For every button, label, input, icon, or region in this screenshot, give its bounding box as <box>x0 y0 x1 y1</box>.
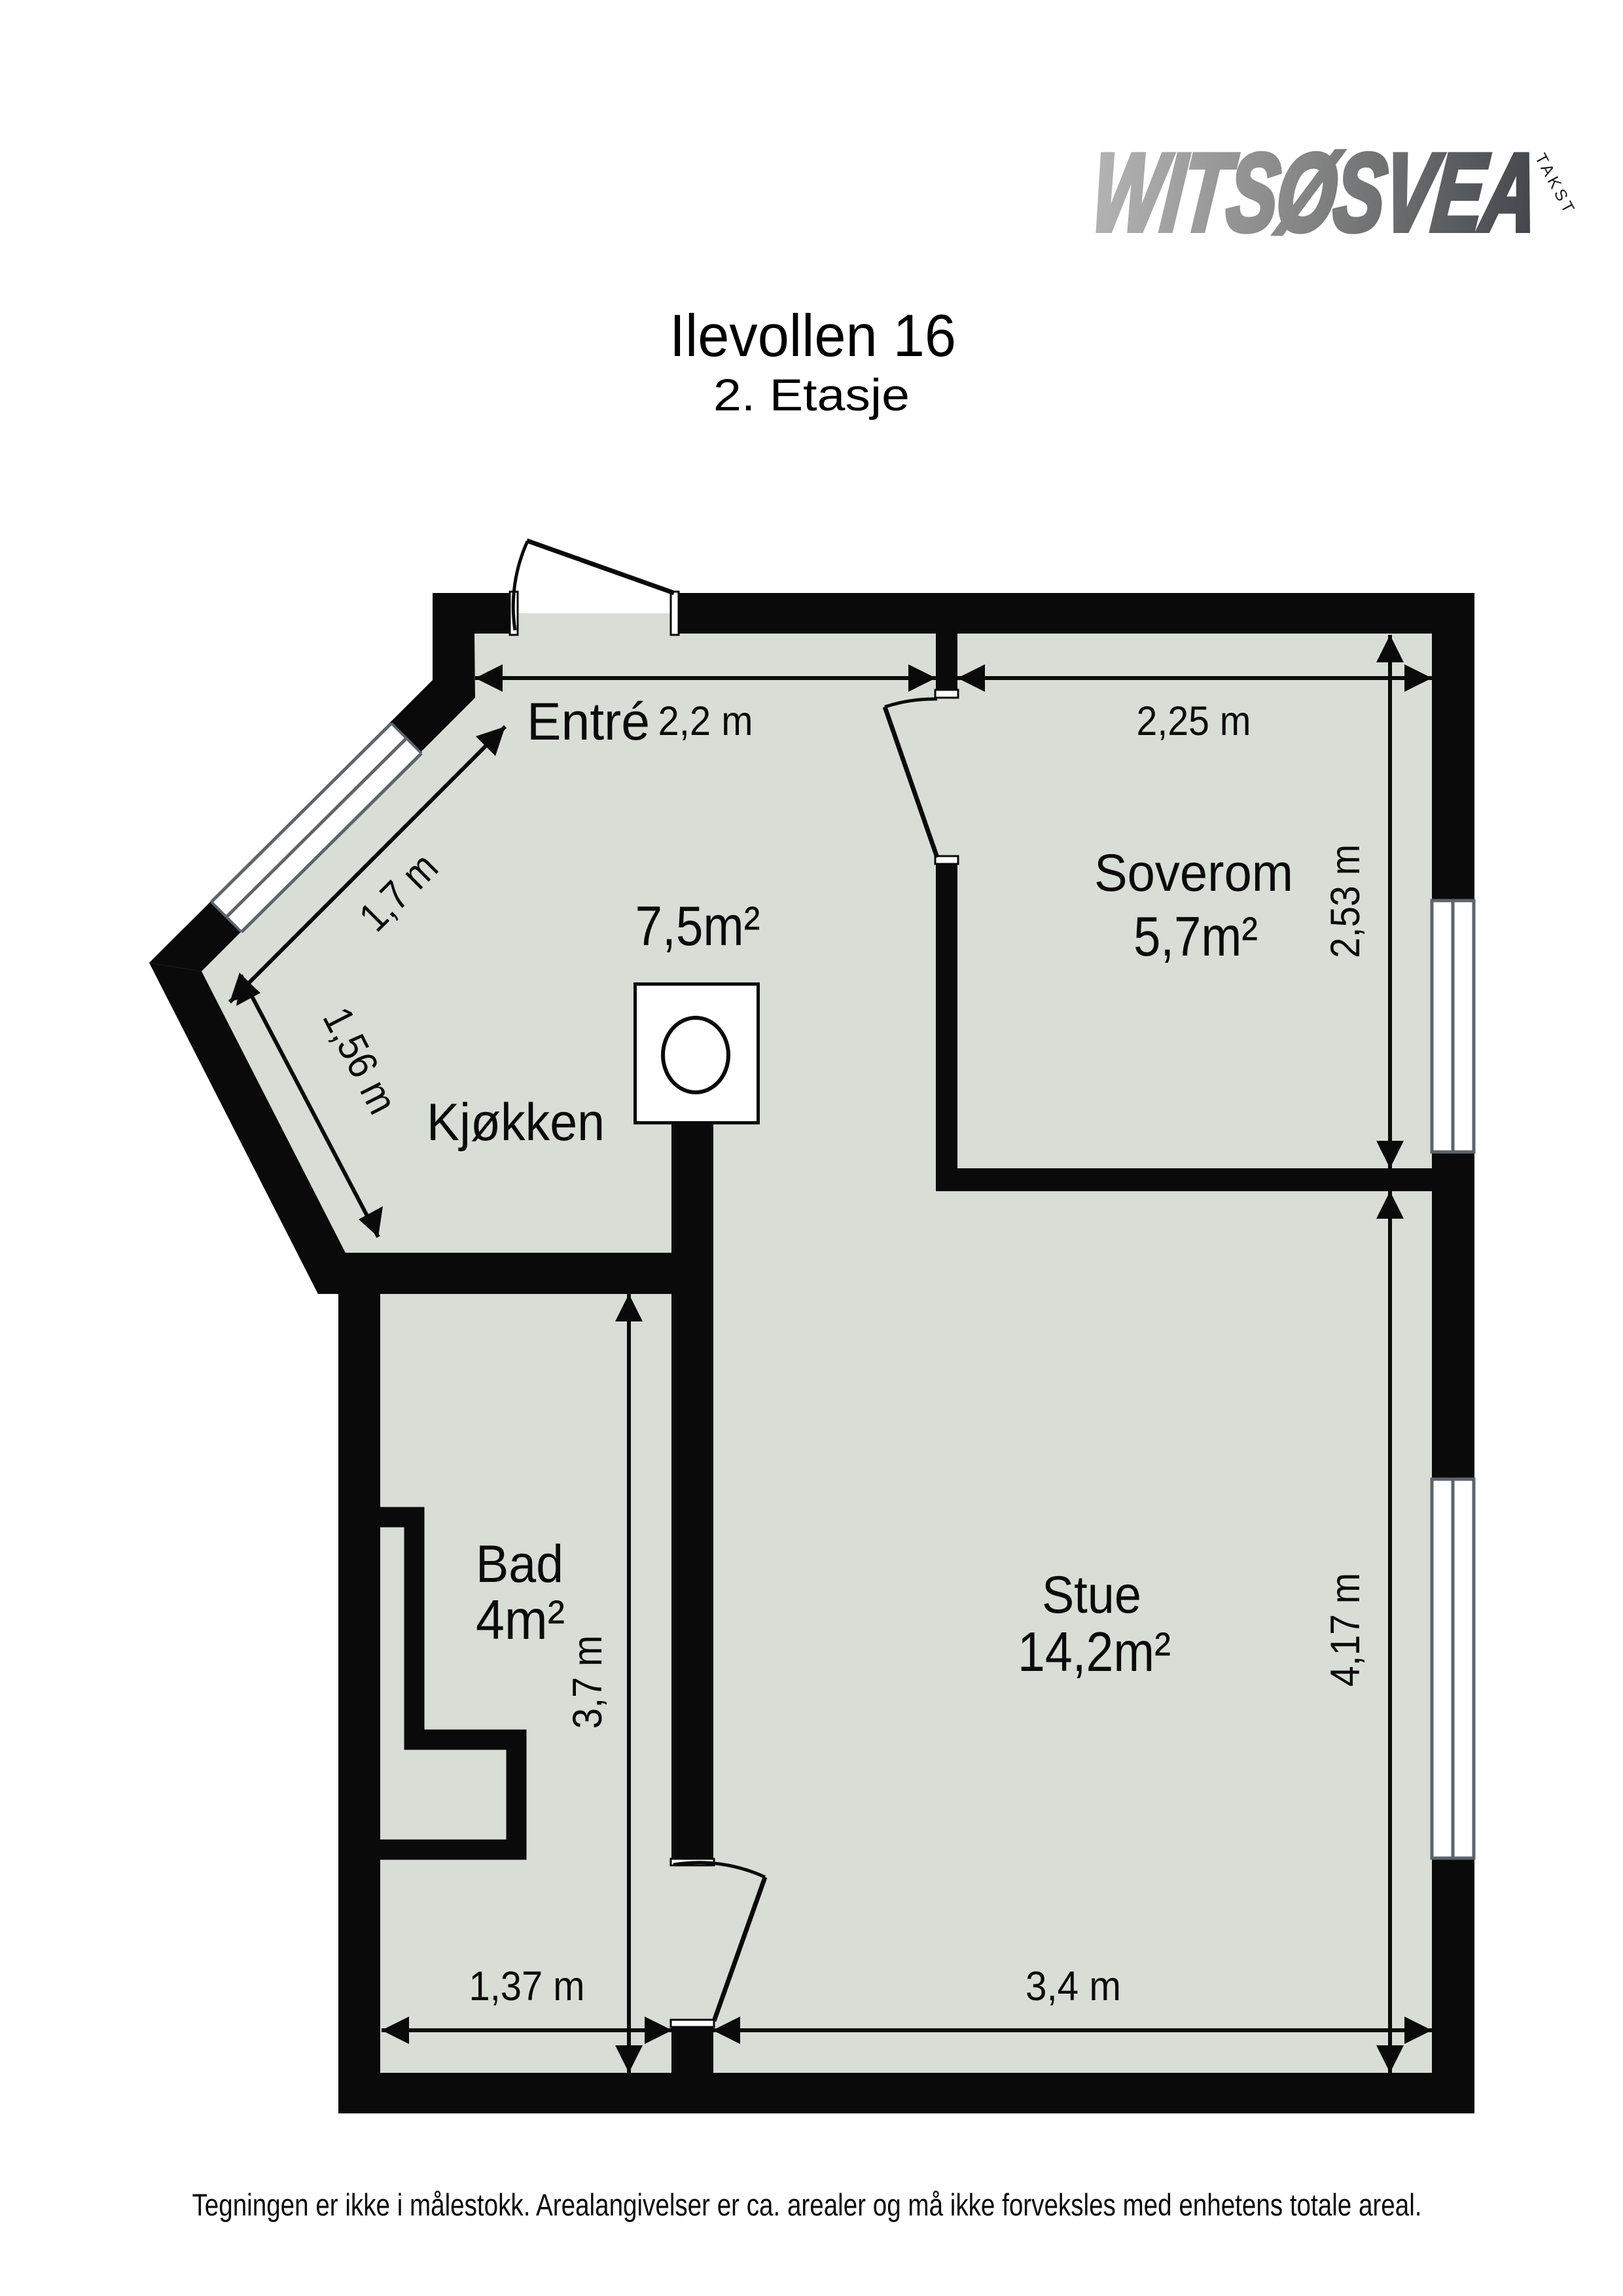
svg-text:14,2m²: 14,2m² <box>1018 1621 1171 1683</box>
svg-text:4,17 m: 4,17 m <box>1323 1573 1368 1687</box>
svg-text:Entré: Entré <box>527 692 650 751</box>
svg-text:Stue: Stue <box>1042 1566 1141 1624</box>
svg-text:5,7m²: 5,7m² <box>1133 906 1258 968</box>
svg-text:Soverom: Soverom <box>1094 844 1293 903</box>
svg-text:2. Etasje: 2. Etasje <box>713 370 910 420</box>
svg-text:1,37 m: 1,37 m <box>469 1964 585 2009</box>
svg-text:2,53 m: 2,53 m <box>1323 844 1368 958</box>
svg-text:3,7 m: 3,7 m <box>565 1636 611 1729</box>
svg-text:2,2 m: 2,2 m <box>658 698 753 744</box>
svg-text:4m²: 4m² <box>476 1589 565 1651</box>
svg-text:WITSØSVEA: WITSØSVEA <box>1086 131 1543 254</box>
svg-text:TAKST: TAKST <box>1531 151 1579 219</box>
svg-text:Bad: Bad <box>476 1535 563 1594</box>
svg-text:2,25 m: 2,25 m <box>1137 698 1251 744</box>
svg-text:7,5m²: 7,5m² <box>635 895 760 958</box>
svg-text:Kjøkken: Kjøkken <box>427 1093 605 1152</box>
svg-text:Ilevollen 16: Ilevollen 16 <box>669 303 956 369</box>
svg-text:Tegningen er ikke i målestokk.: Tegningen er ikke i målestokk. Arealangi… <box>192 2187 1422 2222</box>
svg-text:3,4 m: 3,4 m <box>1026 1964 1121 2009</box>
